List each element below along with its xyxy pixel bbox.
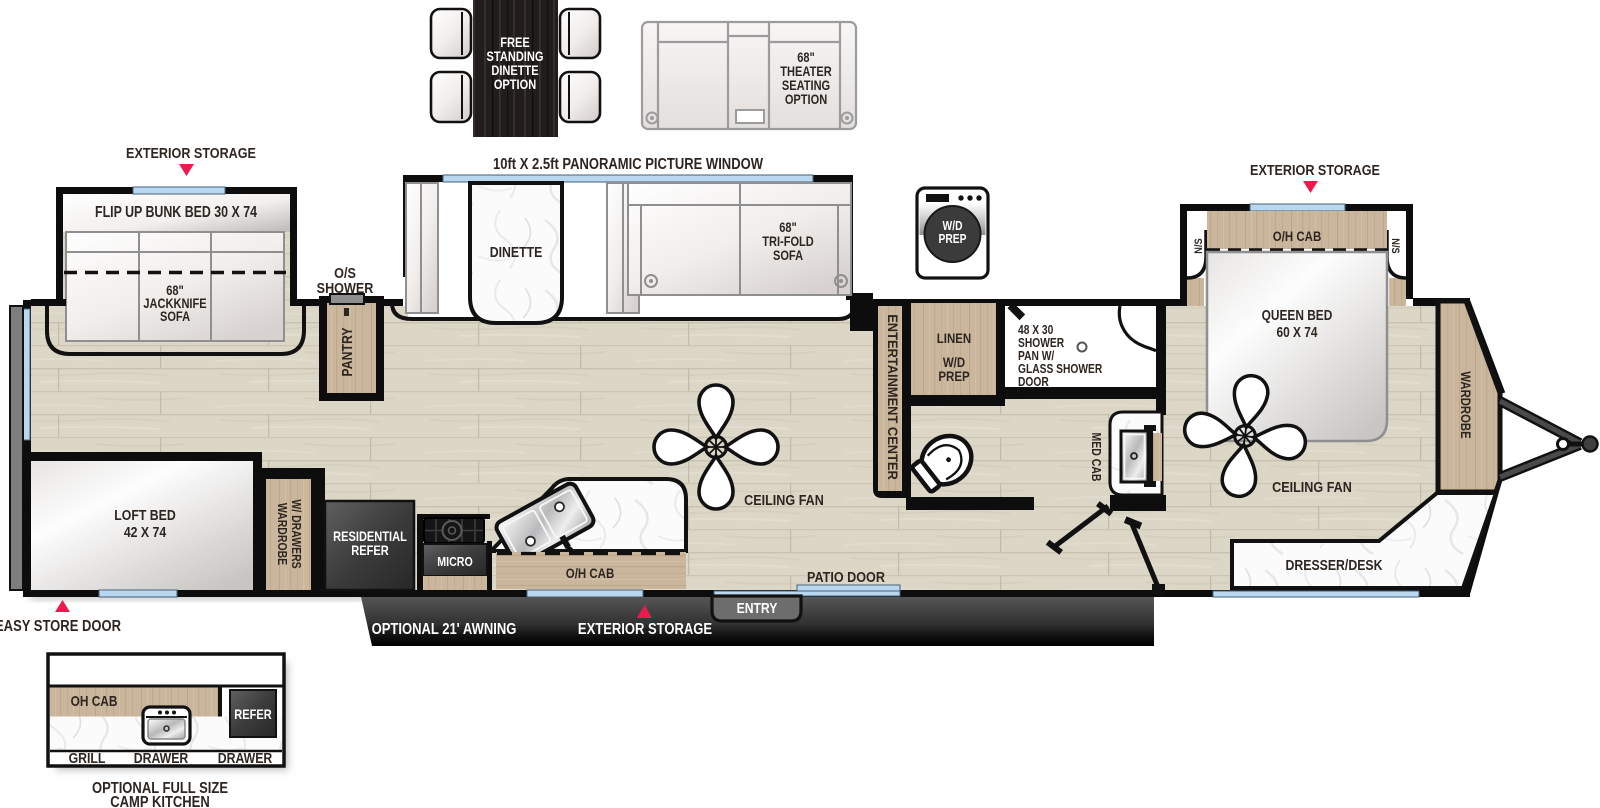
svg-text:SOFA: SOFA: [160, 309, 190, 324]
svg-text:QUEEN BED: QUEEN BED: [1262, 307, 1333, 323]
svg-text:SOFA: SOFA: [773, 248, 803, 263]
svg-text:MICRO: MICRO: [437, 554, 473, 569]
svg-text:WARDROBE: WARDROBE: [1458, 371, 1473, 438]
svg-text:LINEN: LINEN: [937, 330, 971, 346]
svg-text:EXTERIOR STORAGE: EXTERIOR STORAGE: [578, 621, 712, 638]
svg-text:ENTRY: ENTRY: [737, 600, 778, 616]
svg-text:PATIO DOOR: PATIO DOOR: [807, 568, 885, 585]
svg-text:DINETTE: DINETTE: [491, 63, 538, 78]
svg-text:PREP: PREP: [938, 368, 970, 384]
svg-text:O/H CAB: O/H CAB: [1273, 228, 1321, 244]
svg-text:W/D: W/D: [943, 220, 963, 233]
svg-text:PANTRY: PANTRY: [339, 327, 355, 376]
svg-text:FLIP UP BUNK BED 30 X 74: FLIP UP BUNK BED 30 X 74: [95, 203, 257, 221]
svg-text:TRI-FOLD: TRI-FOLD: [762, 234, 814, 249]
svg-text:PREP: PREP: [939, 233, 967, 246]
svg-text:OH CAB: OH CAB: [71, 693, 118, 709]
svg-text:EASY STORE DOOR: EASY STORE DOOR: [0, 618, 122, 635]
svg-text:CEILING FAN: CEILING FAN: [744, 491, 824, 508]
svg-text:ENTERTAINMENT CENTER: ENTERTAINMENT CENTER: [885, 314, 901, 480]
svg-text:WARDROBE: WARDROBE: [275, 503, 288, 566]
svg-text:48 X 30: 48 X 30: [1018, 324, 1053, 337]
svg-text:OPTION: OPTION: [785, 92, 827, 107]
svg-text:OPTIONAL 21' AWNING: OPTIONAL 21' AWNING: [372, 621, 517, 638]
svg-text:STANDING: STANDING: [487, 49, 544, 64]
svg-text:DINETTE: DINETTE: [490, 244, 543, 260]
svg-text:68": 68": [797, 50, 815, 65]
svg-text:DRAWER: DRAWER: [134, 750, 189, 766]
svg-text:EXTERIOR STORAGE: EXTERIOR STORAGE: [1250, 161, 1380, 178]
svg-text:EXTERIOR STORAGE: EXTERIOR STORAGE: [126, 144, 256, 161]
svg-text:CEILING FAN: CEILING FAN: [1272, 478, 1352, 495]
svg-text:60 X 74: 60 X 74: [1277, 324, 1319, 340]
svg-text:REFER: REFER: [234, 707, 272, 722]
svg-text:PAN W/: PAN W/: [1018, 350, 1055, 363]
svg-text:FREE: FREE: [500, 35, 529, 50]
svg-text:W/ DRAWERS: W/ DRAWERS: [289, 499, 302, 569]
svg-text:N/S: N/S: [1193, 238, 1205, 254]
svg-text:SHOWER: SHOWER: [1018, 337, 1065, 350]
svg-text:CAMP KITCHEN: CAMP KITCHEN: [110, 794, 209, 808]
svg-text:SEATING: SEATING: [782, 78, 830, 93]
svg-text:THEATER: THEATER: [780, 64, 831, 79]
svg-text:DRAWER: DRAWER: [218, 750, 273, 766]
svg-text:DRESSER/DESK: DRESSER/DESK: [1286, 557, 1383, 573]
svg-text:68": 68": [779, 220, 797, 235]
svg-text:MED CAB: MED CAB: [1089, 433, 1102, 482]
svg-text:N/S: N/S: [1389, 238, 1401, 254]
svg-text:LOFT BED: LOFT BED: [114, 507, 176, 523]
svg-text:RESIDENTIAL: RESIDENTIAL: [333, 529, 407, 544]
svg-text:GRILL: GRILL: [69, 750, 106, 766]
svg-text:10ft X 2.5ft PANORAMIC PICTURE: 10ft X 2.5ft PANORAMIC PICTURE WINDOW: [493, 156, 763, 173]
svg-text:OPTION: OPTION: [494, 77, 536, 92]
svg-text:O/H CAB: O/H CAB: [566, 565, 614, 581]
svg-text:GLASS SHOWER: GLASS SHOWER: [1018, 363, 1103, 376]
svg-text:SHOWER: SHOWER: [317, 279, 374, 296]
svg-text:42 X 74: 42 X 74: [124, 524, 167, 540]
svg-text:REFER: REFER: [351, 543, 389, 558]
